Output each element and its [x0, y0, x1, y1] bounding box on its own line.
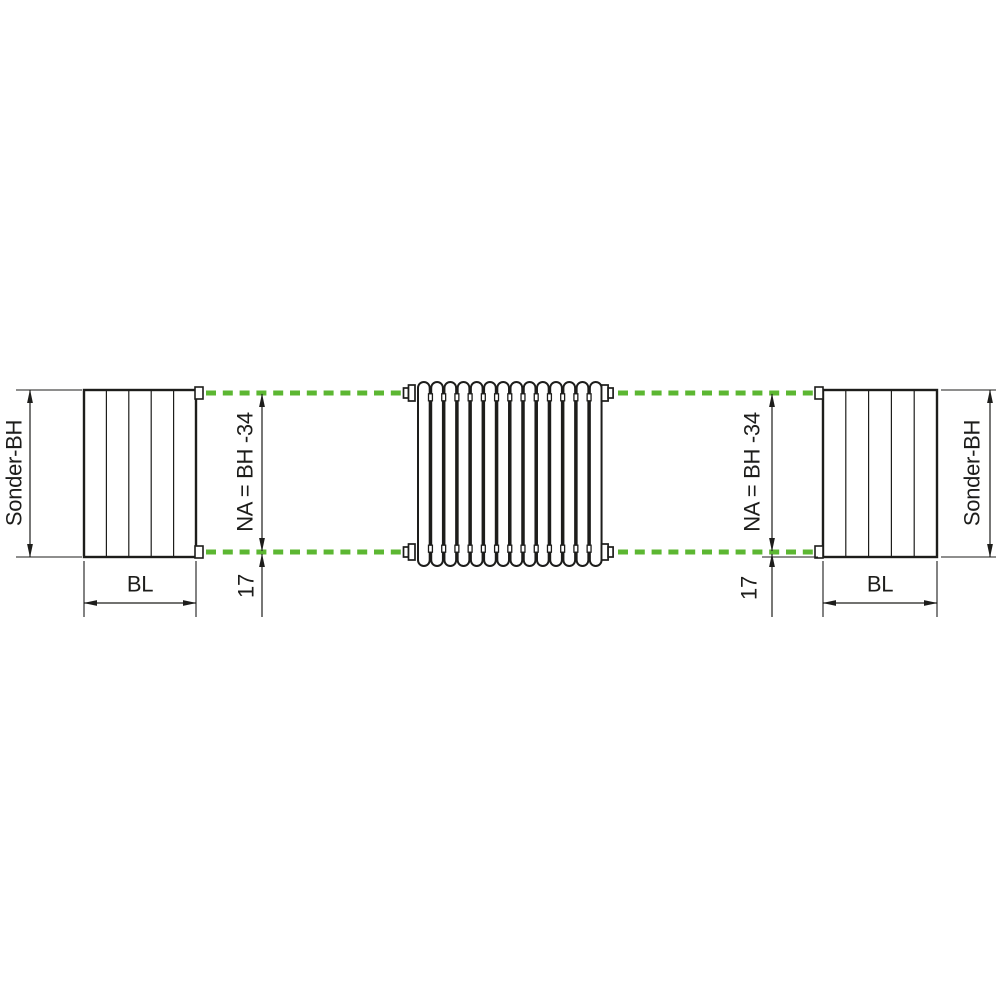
radiator-header-bar	[508, 394, 512, 401]
left-side-view	[84, 387, 203, 558]
left-width-dimension: BL	[84, 561, 196, 617]
right-offset-dimension: 17	[737, 554, 819, 617]
right-sonder-bh-label: Sonder-BH	[960, 420, 985, 526]
radiator-tube	[497, 382, 509, 566]
radiator-header-bar	[429, 394, 433, 401]
left-block-bottom-nipple	[195, 546, 203, 558]
radiator-tube	[590, 382, 602, 566]
radiator-header-bar	[481, 545, 485, 552]
radiator-dimension-diagram: Sonder-BH BL NA = BH -34 17 NA = BH -34 …	[0, 0, 1000, 1000]
right-side-view	[815, 387, 937, 558]
left-height-dimension: Sonder-BH	[2, 390, 83, 557]
radiator-header-bar	[547, 394, 551, 401]
radiator-tube	[484, 382, 496, 566]
left-nipple-dimension: NA = BH -34	[233, 394, 263, 551]
radiator-header-bar	[534, 394, 538, 401]
radiator-header-bar	[574, 394, 578, 401]
radiator-header-bar	[429, 545, 433, 552]
radiator-tube	[537, 382, 549, 566]
radiator-tubes	[418, 382, 602, 566]
radiator-left-bottom-nipple	[404, 544, 416, 560]
radiator-header-bar	[468, 545, 472, 552]
radiator-front-view	[404, 382, 614, 566]
radiator-tube	[471, 382, 483, 566]
right-height-dimension: Sonder-BH	[941, 390, 996, 557]
radiator-right-top-nipple	[602, 385, 614, 401]
radiator-header-bar	[587, 394, 591, 401]
right-na-label: NA = BH -34	[740, 412, 765, 532]
radiator-header-bar	[481, 394, 485, 401]
left-sonder-bh-label: Sonder-BH	[2, 420, 27, 526]
radiator-tube	[577, 382, 589, 566]
radiator-tube	[511, 382, 523, 566]
radiator-tube	[550, 382, 562, 566]
radiator-header-bar	[495, 545, 499, 552]
right-bl-label: BL	[867, 572, 893, 597]
radiator-header-bar	[547, 545, 551, 552]
radiator-header-bar	[574, 545, 578, 552]
left-offset-dimension: 17	[234, 554, 263, 617]
left-block-top-nipple	[195, 387, 203, 399]
radiator-tube	[431, 382, 443, 566]
left-na-label: NA = BH -34	[233, 412, 258, 532]
right-block-outline	[823, 390, 937, 557]
diagram-canvas: Sonder-BH BL NA = BH -34 17 NA = BH -34 …	[0, 0, 1000, 1000]
left-block-outline	[84, 390, 196, 557]
radiator-header-bar	[561, 545, 565, 552]
radiator-header-bar	[534, 545, 538, 552]
right-block-bottom-nipple	[815, 546, 823, 558]
radiator-header-bar	[455, 545, 459, 552]
right-block-top-nipple	[815, 387, 823, 399]
radiator-header-bar	[455, 394, 459, 401]
radiator-right-bottom-nipple	[602, 544, 614, 560]
radiator-tube	[444, 382, 456, 566]
radiator-header-bar	[508, 545, 512, 552]
radiator-left-top-nipple	[404, 385, 416, 401]
radiator-tube	[563, 382, 575, 566]
radiator-tube	[418, 382, 430, 566]
radiator-header-bar	[442, 394, 446, 401]
right-offset-17-label: 17	[737, 576, 762, 600]
radiator-header-bar	[495, 394, 499, 401]
left-offset-17-label: 17	[234, 574, 259, 598]
radiator-tube	[524, 382, 536, 566]
left-bl-label: BL	[127, 572, 153, 597]
radiator-header-bar	[561, 394, 565, 401]
radiator-header-bar	[521, 394, 525, 401]
right-nipple-dimension: NA = BH -34	[740, 394, 773, 551]
right-width-dimension: BL	[823, 561, 937, 617]
radiator-header-bar	[468, 394, 472, 401]
radiator-header-bar	[521, 545, 525, 552]
radiator-header-bar	[442, 545, 446, 552]
radiator-header-bar	[587, 545, 591, 552]
radiator-tube	[458, 382, 470, 566]
